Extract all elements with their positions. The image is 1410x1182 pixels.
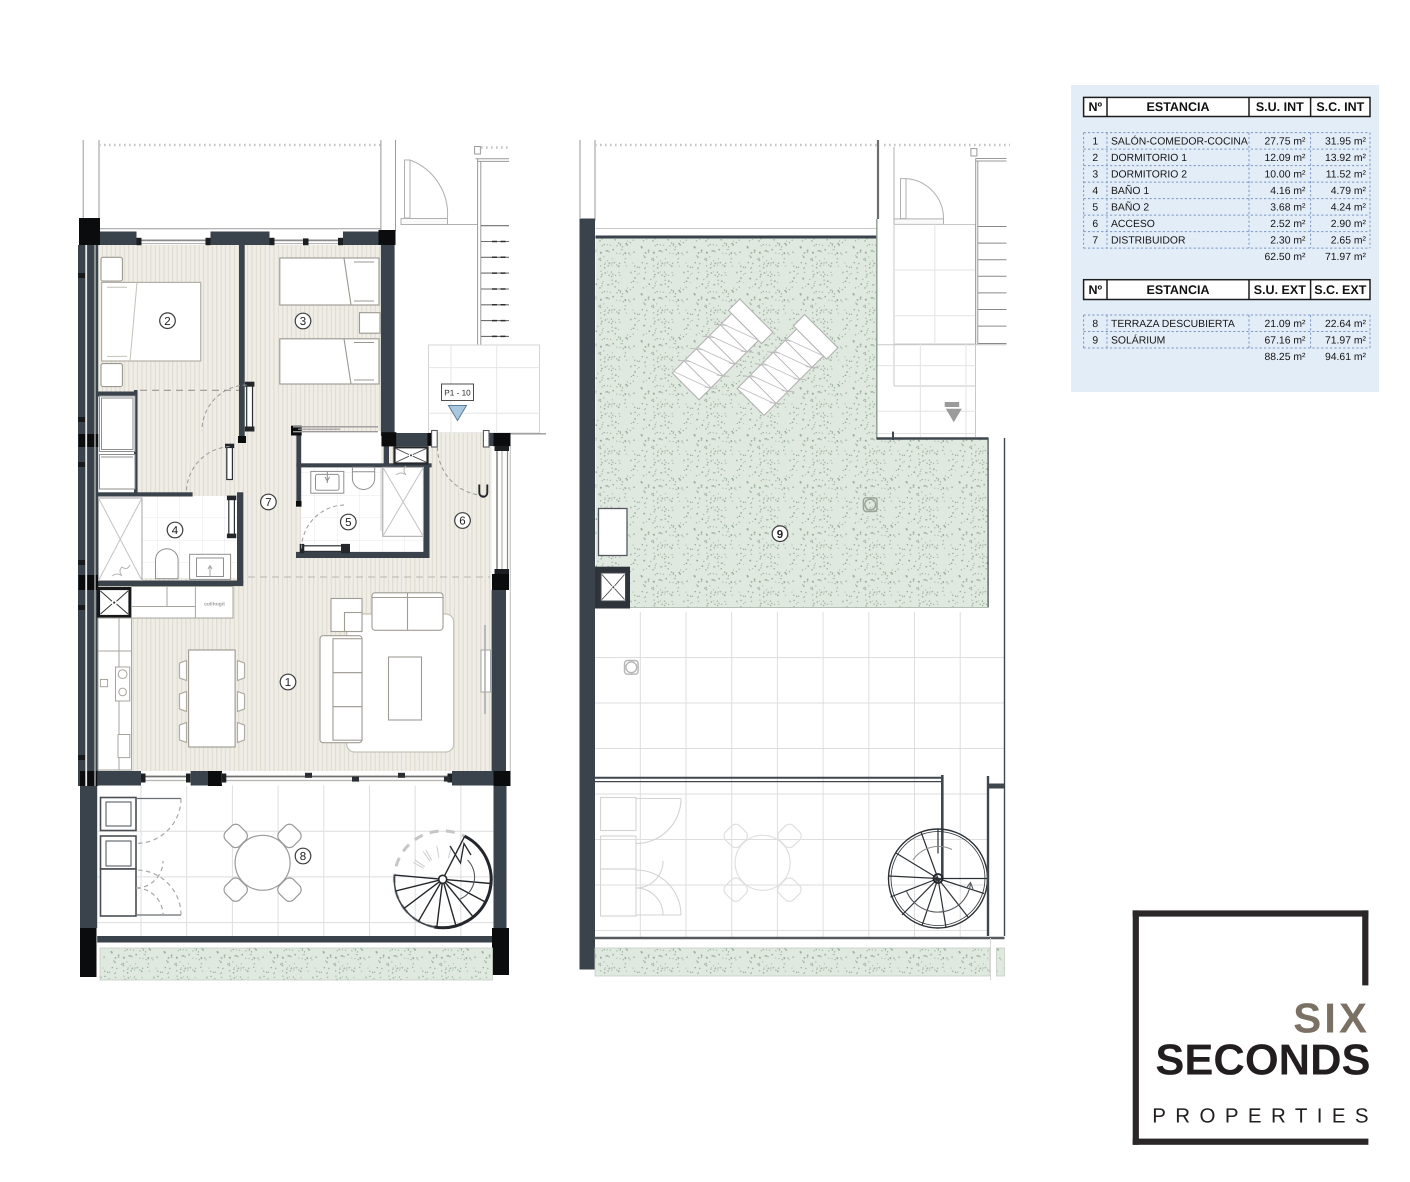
svg-text:DORMITORIO 2: DORMITORIO 2 [1111,170,1187,181]
svg-text:1: 1 [285,677,291,689]
svg-text:ACCESO: ACCESO [1111,219,1155,230]
svg-text:67.16 m²: 67.16 m² [1264,336,1306,347]
svg-text:colihogit: colihogit [204,602,225,608]
svg-text:94.61 m²: 94.61 m² [1325,352,1367,363]
svg-text:4: 4 [1092,186,1098,197]
svg-text:PROPERTIES: PROPERTIES [1152,1105,1378,1128]
svg-text:Nº: Nº [1089,100,1103,114]
svg-text:BAÑO 1: BAÑO 1 [1111,184,1149,197]
svg-text:DISTRIBUIDOR: DISTRIBUIDOR [1111,236,1186,247]
svg-text:6: 6 [459,516,465,528]
svg-text:4.79 m²: 4.79 m² [1331,186,1367,197]
svg-text:S.C. EXT: S.C. EXT [1314,283,1366,297]
svg-text:4: 4 [172,525,179,537]
svg-text:71.97 m²: 71.97 m² [1325,252,1367,263]
svg-text:DORMITORIO 1: DORMITORIO 1 [1111,153,1187,164]
svg-text:1: 1 [1092,137,1098,148]
svg-text:7: 7 [1092,236,1098,247]
svg-text:7: 7 [265,497,271,509]
svg-text:SIX: SIX [1293,995,1370,1042]
svg-text:TERRAZA DESCUBIERTA: TERRAZA DESCUBIERTA [1111,319,1235,330]
svg-text:8: 8 [300,851,306,863]
svg-text:SOLÁRIUM: SOLÁRIUM [1111,334,1165,347]
svg-text:5: 5 [345,517,351,529]
svg-text:ESTANCIA: ESTANCIA [1147,100,1210,114]
svg-text:2: 2 [1092,153,1098,164]
svg-text:4.16 m²: 4.16 m² [1270,186,1306,197]
svg-text:22.64 m²: 22.64 m² [1325,319,1367,330]
svg-text:S.C. INT: S.C. INT [1316,100,1364,114]
svg-text:10.00 m²: 10.00 m² [1264,170,1306,181]
svg-text:21.09 m²: 21.09 m² [1264,319,1306,330]
svg-text:6: 6 [1092,219,1098,230]
svg-text:11.52 m²: 11.52 m² [1326,170,1367,181]
svg-text:27.75 m²: 27.75 m² [1264,137,1306,148]
svg-text:2.30 m²: 2.30 m² [1270,236,1306,247]
svg-text:Nº: Nº [1089,283,1103,297]
svg-text:SECONDS: SECONDS [1155,1037,1370,1085]
svg-text:3.68 m²: 3.68 m² [1270,203,1306,214]
svg-text:4.24 m²: 4.24 m² [1331,203,1367,214]
svg-text:13.92 m²: 13.92 m² [1325,153,1367,164]
svg-text:3: 3 [1092,170,1098,181]
svg-text:ESTANCIA: ESTANCIA [1147,283,1210,297]
svg-text:5: 5 [1092,203,1098,214]
svg-text:SALÓN-COMEDOR-COCINA: SALÓN-COMEDOR-COCINA [1111,135,1248,148]
svg-text:2: 2 [164,316,170,328]
svg-text:BAÑO 2: BAÑO 2 [1111,201,1149,214]
svg-text:2.65 m²: 2.65 m² [1331,236,1367,247]
svg-text:62.50 m²: 62.50 m² [1264,252,1306,263]
svg-text:2.52 m²: 2.52 m² [1270,219,1306,230]
svg-text:9: 9 [1092,336,1098,347]
svg-text:S.U. INT: S.U. INT [1256,100,1304,114]
svg-text:2.90 m²: 2.90 m² [1331,219,1367,230]
svg-text:3: 3 [300,316,306,328]
svg-text:9: 9 [777,529,783,541]
svg-text:71.97 m²: 71.97 m² [1325,336,1367,347]
svg-text:31.95 m²: 31.95 m² [1325,137,1367,148]
svg-text:P1 - 10: P1 - 10 [444,389,471,398]
svg-text:88.25 m²: 88.25 m² [1264,352,1306,363]
svg-text:8: 8 [1092,319,1098,330]
svg-text:S.U. EXT: S.U. EXT [1254,283,1306,297]
svg-text:12.09 m²: 12.09 m² [1264,153,1306,164]
